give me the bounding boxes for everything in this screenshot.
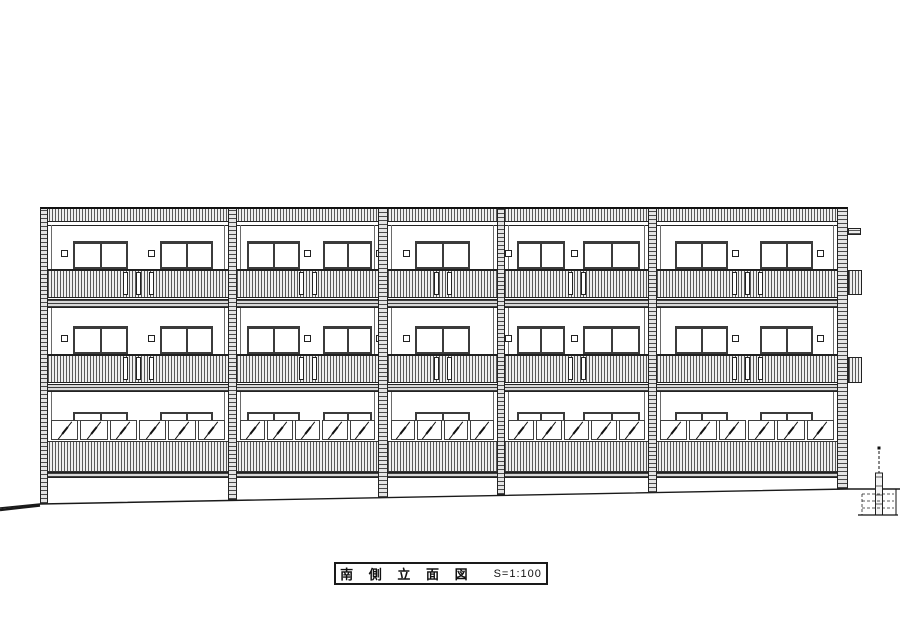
balcony-railing-slot: [299, 272, 304, 295]
side-parapet-cap: [848, 228, 861, 235]
window-mullion: [273, 244, 275, 267]
vent-square: [148, 335, 155, 342]
glazing-tick-icon: [304, 426, 311, 434]
sliding-window: [73, 326, 128, 354]
balcony-railing-slot: [312, 272, 317, 295]
glazing-tick-icon: [729, 426, 736, 434]
glazing-tick-icon: [61, 426, 68, 434]
balcony-railing-slot: [123, 357, 128, 380]
window-mullion: [347, 244, 349, 267]
glass-louver-panel: [417, 420, 441, 440]
sliding-window: [73, 241, 128, 269]
balcony-railing-slot: [136, 272, 141, 295]
balcony-railing-slot: [299, 357, 304, 380]
glazing-tick-icon: [277, 426, 284, 434]
glazing-tick-icon: [90, 426, 97, 434]
balcony-railing-band: [505, 354, 648, 383]
glass-louver-panel: [470, 420, 494, 440]
sliding-window: [583, 241, 640, 269]
glazing-tick-icon: [817, 426, 824, 434]
glazing-tick-icon: [670, 426, 677, 434]
louver-railing-row: [660, 420, 834, 440]
vent-square: [571, 250, 578, 257]
sliding-window: [517, 241, 565, 269]
balcony-railing-slot: [447, 272, 452, 295]
glass-louver-panel: [591, 420, 617, 440]
pilaster-column: [378, 207, 388, 498]
sliding-window: [323, 326, 372, 354]
balcony-railing-slot: [136, 357, 141, 380]
glass-louver-panel: [619, 420, 645, 440]
glass-louver-panel: [660, 420, 687, 440]
window-mullion: [540, 329, 542, 352]
balcony-railing-slot: [434, 272, 439, 295]
glazing-tick-icon: [400, 426, 407, 434]
balcony-railing-slot: [745, 272, 750, 295]
balcony-railing-slot: [312, 357, 317, 380]
glazing-tick-icon: [478, 426, 485, 434]
vent-square: [817, 335, 824, 342]
marker-post: [876, 473, 883, 515]
glazing-tick-icon: [452, 426, 459, 434]
window-mullion: [442, 244, 444, 267]
balcony-railing-slot: [745, 357, 750, 380]
balcony-railing-slot: [732, 272, 737, 295]
balcony-railing-band: [505, 269, 648, 298]
window-mullion: [786, 329, 788, 352]
glazing-tick-icon: [331, 426, 338, 434]
glass-louver-panel: [536, 420, 562, 440]
vent-square: [505, 335, 512, 342]
glazing-tick-icon: [699, 426, 706, 434]
window-mullion: [701, 329, 703, 352]
glass-louver-panel: [295, 420, 320, 440]
glass-louver-panel: [689, 420, 716, 440]
sliding-window: [583, 326, 640, 354]
pilaster-column: [228, 207, 237, 500]
glass-louver-panel: [110, 420, 137, 440]
title-block: 南 側 立 面 図 S=1:100: [334, 562, 548, 585]
sliding-window: [760, 241, 813, 269]
ground-line: [0, 489, 900, 508]
window-mullion: [100, 244, 102, 267]
balcony-railing-band: [388, 354, 497, 383]
ground-line-left: [0, 506, 40, 511]
sliding-window: [675, 326, 728, 354]
sliding-window: [675, 241, 728, 269]
glazing-tick-icon: [545, 426, 552, 434]
glass-louver-panel: [322, 420, 347, 440]
window-mullion: [347, 329, 349, 352]
louver-railing-row: [51, 420, 225, 440]
glass-louver-panel: [80, 420, 107, 440]
glazing-tick-icon: [573, 426, 580, 434]
balcony-railing-slot: [447, 357, 452, 380]
glass-louver-panel: [267, 420, 292, 440]
vent-square: [403, 335, 410, 342]
balcony-railing-slot: [758, 272, 763, 295]
balcony-railing-slot: [123, 272, 128, 295]
glass-louver-panel: [198, 420, 225, 440]
glazing-tick-icon: [629, 426, 636, 434]
floor-slab-band: [40, 384, 848, 392]
vent-square: [304, 250, 311, 257]
glass-louver-panel: [748, 420, 775, 440]
glazing-tick-icon: [249, 426, 256, 434]
glass-louver-panel: [777, 420, 804, 440]
pilaster-column: [497, 207, 505, 495]
sliding-window: [160, 326, 213, 354]
glass-louver-panel: [240, 420, 265, 440]
sliding-window: [517, 326, 565, 354]
window-mullion: [186, 329, 188, 352]
glass-louver-panel: [444, 420, 468, 440]
pilaster-column: [40, 207, 48, 504]
louver-railing-row: [508, 420, 645, 440]
vent-square: [571, 335, 578, 342]
ground-screen-band: [40, 441, 848, 472]
balcony-railing-slot: [732, 357, 737, 380]
glazing-tick-icon: [359, 426, 366, 434]
balcony-railing-slot: [434, 357, 439, 380]
parapet-band: [40, 207, 848, 222]
glazing-tick-icon: [787, 426, 794, 434]
window-mullion: [100, 329, 102, 352]
balcony-railing-slot: [581, 272, 586, 295]
drawing-title: 南 側 立 面 図: [340, 564, 473, 583]
glazing-tick-icon: [149, 426, 156, 434]
glass-louver-panel: [350, 420, 375, 440]
floor-slab-band: [40, 299, 848, 308]
sliding-window: [415, 241, 470, 269]
glass-louver-panel: [391, 420, 415, 440]
glazing-tick-icon: [208, 426, 215, 434]
sliding-window: [415, 326, 470, 354]
vent-square: [732, 335, 739, 342]
balcony-railing-slot: [581, 357, 586, 380]
vent-square: [817, 250, 824, 257]
glazing-tick-icon: [120, 426, 127, 434]
glazing-tick-icon: [178, 426, 185, 434]
glass-louver-panel: [51, 420, 78, 440]
side-balcony-box: [848, 270, 862, 295]
elevation-drawing: 南 側 立 面 図 S=1:100: [0, 0, 900, 636]
louver-railing-row: [391, 420, 494, 440]
balcony-railing-slot: [758, 357, 763, 380]
vent-square: [148, 250, 155, 257]
glazing-tick-icon: [517, 426, 524, 434]
sliding-window: [760, 326, 813, 354]
window-mullion: [701, 244, 703, 267]
balcony-railing-band: [237, 354, 378, 383]
window-mullion: [611, 244, 613, 267]
glass-louver-panel: [139, 420, 166, 440]
louver-railing-row: [240, 420, 375, 440]
glass-louver-panel: [719, 420, 746, 440]
sliding-window: [323, 241, 372, 269]
vent-square: [403, 250, 410, 257]
balcony-railing-slot: [149, 272, 154, 295]
window-mullion: [611, 329, 613, 352]
vent-square: [304, 335, 311, 342]
sliding-window: [247, 241, 300, 269]
glass-louver-panel: [168, 420, 195, 440]
pilaster-column: [837, 207, 848, 489]
balcony-railing-band: [237, 269, 378, 298]
glass-louver-panel: [807, 420, 834, 440]
vent-square: [61, 335, 68, 342]
sliding-window: [160, 241, 213, 269]
balcony-railing-slot: [568, 272, 573, 295]
side-balcony-box: [848, 357, 862, 383]
vent-square: [61, 250, 68, 257]
glazing-tick-icon: [601, 426, 608, 434]
glass-louver-panel: [564, 420, 590, 440]
glazing-tick-icon: [758, 426, 765, 434]
vent-square: [732, 250, 739, 257]
window-mullion: [273, 329, 275, 352]
base-band: [40, 472, 848, 478]
window-mullion: [540, 244, 542, 267]
balcony-railing-slot: [568, 357, 573, 380]
window-mullion: [442, 329, 444, 352]
window-mullion: [186, 244, 188, 267]
sliding-window: [247, 326, 300, 354]
marker-dot: [878, 447, 881, 450]
balcony-railing-slot: [149, 357, 154, 380]
pilaster-column: [648, 207, 657, 493]
drawing-scale: S=1:100: [494, 568, 542, 580]
window-mullion: [786, 244, 788, 267]
glass-louver-panel: [508, 420, 534, 440]
balcony-railing-band: [388, 269, 497, 298]
vent-square: [505, 250, 512, 257]
glazing-tick-icon: [426, 426, 433, 434]
